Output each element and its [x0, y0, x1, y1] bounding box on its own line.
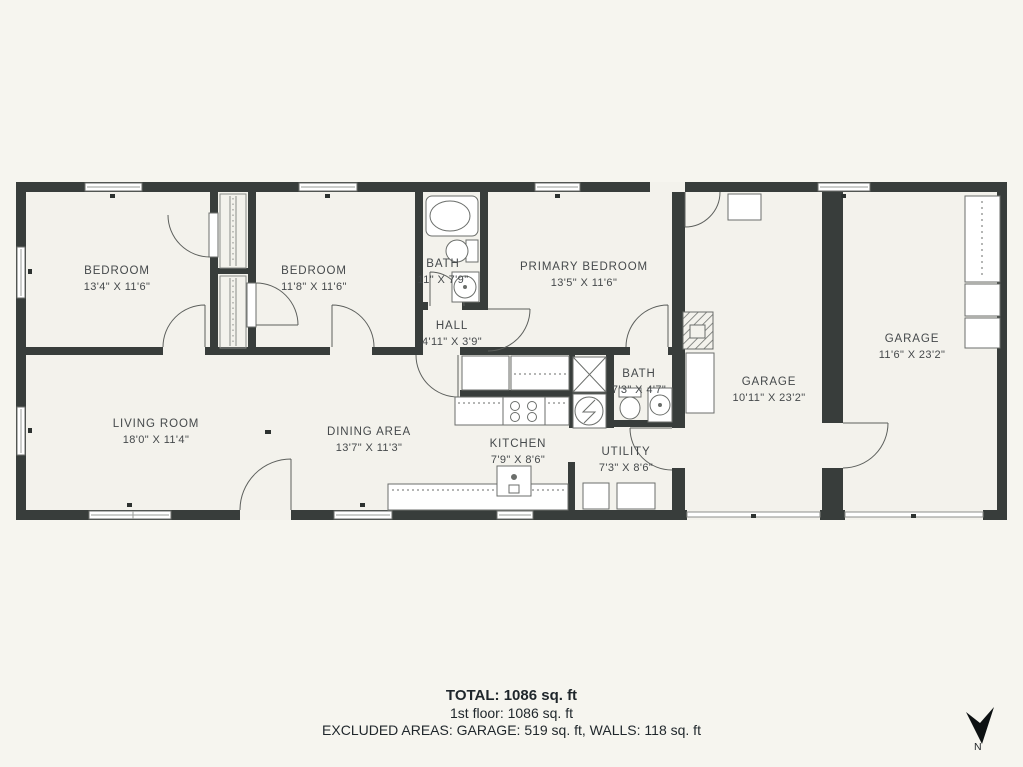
area-summary: TOTAL: 1086 sq. ft 1st floor: 1086 sq. f… [0, 687, 1023, 740]
room-name: PRIMARY BEDROOM [520, 259, 648, 275]
burner [528, 402, 537, 411]
room-name: HALL [422, 318, 482, 334]
room-dims: 13'7" X 11'3" [327, 440, 411, 456]
room-label-garage-2: GARAGE 11'6" X 23'2" [879, 331, 946, 363]
water-heater-core [690, 325, 705, 338]
door-opening [240, 510, 291, 520]
wall-segment [568, 462, 575, 510]
wall-segment [372, 347, 423, 355]
room-label-hall: HALL 4'11" X 3'9" [422, 318, 482, 350]
room-dims: 18'0" X 11'4" [113, 432, 200, 448]
tick [751, 514, 756, 518]
room-dims: 13'4" X 11'6" [84, 279, 151, 295]
total-area-text: TOTAL: 1086 sq. ft [0, 687, 1023, 705]
cabinet [511, 356, 569, 390]
room-label-bedroom-2: BEDROOM 11'8" X 11'6" [281, 263, 347, 295]
tick [555, 194, 560, 198]
tick [110, 194, 115, 198]
room-label-primary-bedroom: PRIMARY BEDROOM 13'5" X 11'6" [520, 259, 648, 291]
wall-segment [672, 192, 685, 428]
burner [528, 413, 537, 422]
room-name: BEDROOM [84, 263, 151, 279]
room-name: UTILITY [599, 444, 653, 460]
room-dims: 4'11" X 3'9" [422, 334, 482, 350]
room-name: BATH [612, 366, 666, 382]
wall-segment [16, 347, 163, 355]
tick [911, 514, 916, 518]
garage2-fixtures [965, 196, 1000, 348]
room-dims: 13'5" X 11'6" [520, 275, 648, 291]
room-name: LIVING ROOM [113, 416, 200, 432]
wall-segment [822, 192, 843, 423]
room-name: DINING AREA [327, 424, 411, 440]
room-dims: 11" X 7'9" [417, 272, 468, 288]
room-label-bath-1: BATH 11" X 7'9" [417, 256, 468, 288]
room-name: BATH [417, 256, 468, 272]
cabinet [965, 318, 1000, 348]
room-label-bath-2: BATH 7'3" X 4'7" [612, 366, 666, 398]
burner [511, 402, 520, 411]
washer-drum [575, 397, 603, 425]
stove [503, 397, 545, 425]
wall-segment [822, 468, 843, 520]
freezer [686, 353, 714, 413]
room-dims: 7'9" X 8'6" [490, 452, 547, 468]
room-name: GARAGE [879, 331, 946, 347]
tick [325, 194, 330, 198]
utility-fixtures [583, 483, 655, 509]
door-slab [209, 213, 218, 257]
room-label-garage-1: GARAGE 10'11" X 23'2" [732, 374, 805, 406]
tick [360, 503, 365, 507]
appliance [617, 483, 655, 509]
cabinet [965, 284, 1000, 316]
burner [511, 413, 520, 422]
door-slab [247, 283, 256, 327]
excluded-area-text: EXCLUDED AREAS: GARAGE: 519 sq. ft, WALL… [0, 722, 1023, 740]
sink-drain [659, 404, 662, 407]
tick [841, 194, 846, 198]
wall-segment [460, 347, 630, 355]
room-label-utility: UTILITY 7'3" X 8'6" [599, 444, 653, 476]
tick [265, 430, 271, 434]
wall-segment [248, 192, 256, 352]
room-label-bedroom-1: BEDROOM 13'4" X 11'6" [84, 263, 151, 295]
room-dims: 7'3" X 4'7" [612, 382, 666, 398]
room-dims: 10'11" X 23'2" [732, 390, 805, 406]
toilet-bowl [620, 397, 640, 419]
pantry-closet [462, 356, 509, 390]
wall-segment [480, 192, 488, 309]
room-dims: 11'6" X 23'2" [879, 347, 946, 363]
wall-segment [218, 268, 248, 274]
north-label: N [974, 741, 982, 753]
room-name: BEDROOM [281, 263, 347, 279]
door-opening [650, 182, 685, 192]
room-label-living-room: LIVING ROOM 18'0" X 11'4" [113, 416, 200, 448]
bathtub-basin [430, 201, 470, 231]
sink-basin [509, 485, 519, 493]
appliance [583, 483, 609, 509]
room-name: GARAGE [732, 374, 805, 390]
tick [127, 503, 132, 507]
faucet [512, 475, 517, 480]
tick [28, 269, 32, 274]
shelf [728, 194, 761, 220]
floorplan-page: BEDROOM 13'4" X 11'6" BEDROOM 11'8" X 11… [0, 0, 1023, 767]
room-dims: 11'8" X 11'6" [281, 279, 347, 295]
room-label-kitchen: KITCHEN 7'9" X 8'6" [490, 436, 547, 468]
room-label-dining-area: DINING AREA 13'7" X 11'3" [327, 424, 411, 456]
wall-segment [672, 468, 685, 520]
counter-bottom [388, 484, 568, 510]
floor-area-text: 1st floor: 1086 sq. ft [0, 705, 1023, 723]
wall-segment [462, 302, 488, 310]
wall-segment [415, 302, 428, 310]
room-dims: 7'3" X 8'6" [599, 460, 653, 476]
room-name: KITCHEN [490, 436, 547, 452]
floorplan-drawing [0, 0, 1023, 767]
tick [28, 428, 32, 433]
